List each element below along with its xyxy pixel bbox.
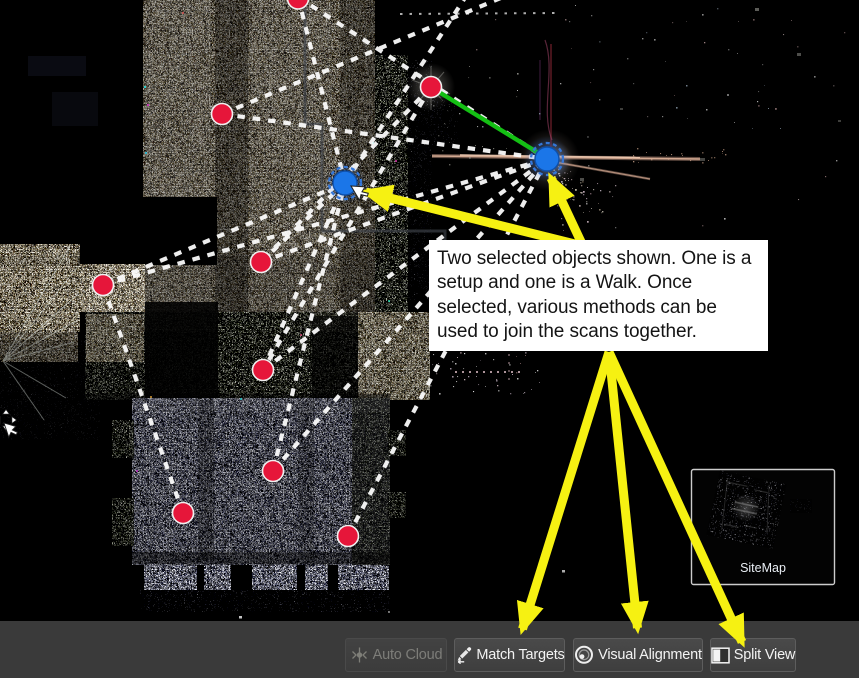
svg-text:SiteMap: SiteMap — [740, 561, 786, 575]
